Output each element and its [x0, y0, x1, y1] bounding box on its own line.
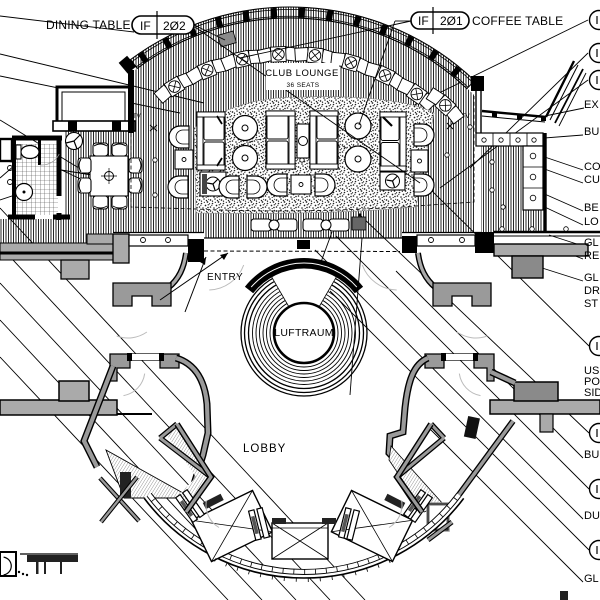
svg-text:IF: IF — [140, 19, 151, 33]
svg-text:ST: ST — [584, 298, 598, 310]
svg-text:2Ø1: 2Ø1 — [440, 14, 463, 28]
svg-text:CO: CO — [584, 161, 600, 173]
svg-text:SID: SID — [584, 387, 600, 399]
svg-text:GL: GL — [584, 272, 599, 284]
svg-text:DR: DR — [584, 285, 600, 297]
svg-text:36 SEATS: 36 SEATS — [286, 82, 319, 89]
svg-text:LUFTRAUM: LUFTRAUM — [274, 327, 334, 339]
svg-text:LOBBY: LOBBY — [243, 443, 286, 455]
svg-text:TV: TV — [133, 114, 141, 120]
svg-text:DINING TABLE: DINING TABLE — [46, 18, 131, 32]
svg-text:COFFEE TABLE: COFFEE TABLE — [472, 14, 563, 28]
svg-text:LO: LO — [584, 216, 599, 228]
svg-text:BU: BU — [584, 449, 599, 461]
svg-text:ENTRY: ENTRY — [207, 272, 243, 283]
svg-text:CU: CU — [584, 174, 600, 186]
svg-text:IF: IF — [418, 14, 429, 28]
svg-text:GL: GL — [584, 573, 599, 585]
svg-text:GL: GL — [584, 237, 599, 249]
svg-text:BE: BE — [584, 202, 599, 214]
svg-text:CLUB LOUNGE: CLUB LOUNGE — [265, 68, 339, 79]
svg-text:DU: DU — [584, 510, 600, 522]
svg-text:RE: RE — [584, 250, 599, 262]
svg-text:TV: TV — [462, 114, 470, 120]
svg-text:BU: BU — [584, 126, 599, 138]
svg-text:2Ø2: 2Ø2 — [163, 19, 186, 33]
svg-text:EX: EX — [584, 99, 599, 111]
